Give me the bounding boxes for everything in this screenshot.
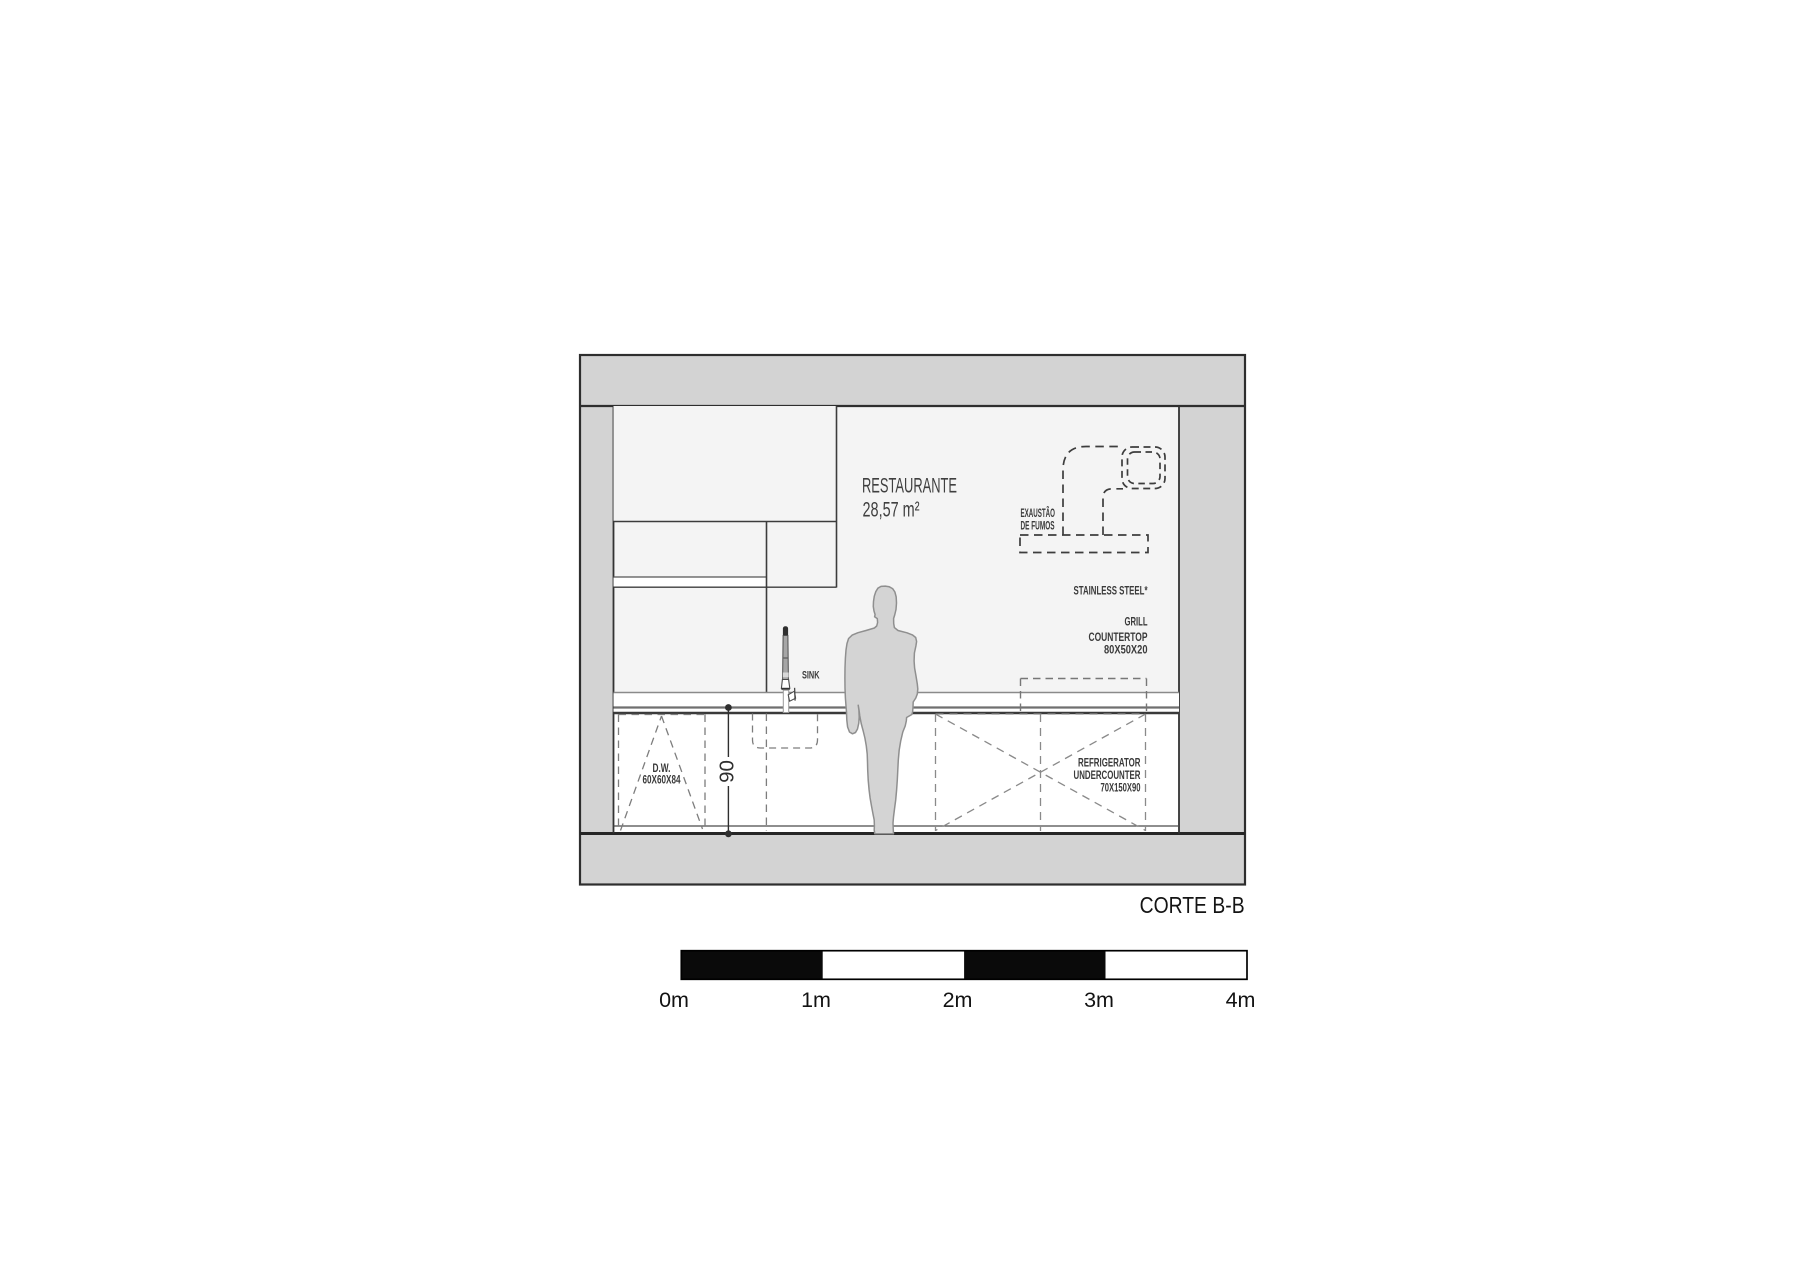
svg-text:SINK: SINK xyxy=(802,670,820,682)
svg-text:3m: 3m xyxy=(1084,988,1114,1012)
svg-text:90: 90 xyxy=(716,760,739,783)
svg-text:2m: 2m xyxy=(943,988,973,1012)
svg-text:GRILL: GRILL xyxy=(1125,617,1148,629)
svg-text:RESTAURANTE: RESTAURANTE xyxy=(862,475,957,498)
svg-text:0m: 0m xyxy=(659,988,689,1012)
svg-text:CORTE B-B: CORTE B-B xyxy=(1140,892,1245,918)
svg-text:EXAUSTÃO: EXAUSTÃO xyxy=(1021,507,1056,520)
svg-text:80X50X20: 80X50X20 xyxy=(1104,645,1148,657)
svg-text:4m: 4m xyxy=(1226,988,1256,1012)
svg-text:D.W.: D.W. xyxy=(653,763,671,775)
svg-text:STAINLESS STEEL*: STAINLESS STEEL* xyxy=(1074,586,1148,598)
svg-text:28,57 m²: 28,57 m² xyxy=(863,499,920,522)
svg-text:70X150X90: 70X150X90 xyxy=(1101,781,1141,795)
svg-text:DE FUMOS: DE FUMOS xyxy=(1021,521,1055,533)
svg-text:1m: 1m xyxy=(801,988,831,1012)
svg-text:60X60X84: 60X60X84 xyxy=(643,775,681,787)
svg-text:COUNTERTOP: COUNTERTOP xyxy=(1089,632,1148,644)
